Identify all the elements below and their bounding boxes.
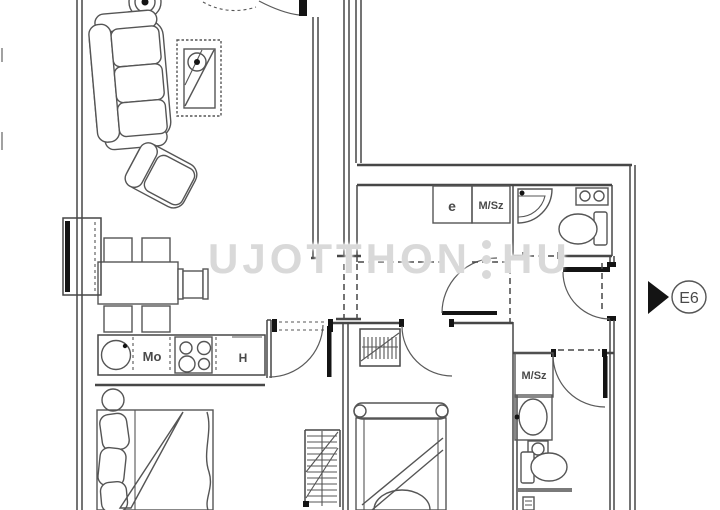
blanket-edge [207,412,211,510]
washer-label: M/Sz [521,370,547,382]
framed-picture [177,40,221,116]
pillows [97,412,130,510]
bathroom-top [442,185,612,315]
toilet-bowl [531,453,567,481]
high-chair [183,271,203,298]
blanket-fold [362,438,443,510]
top-door [203,0,307,16]
entrance-door-leaf [563,267,610,272]
headboard [354,403,448,419]
dining-set [98,238,208,332]
door-leaf [603,356,608,398]
oval-sink [519,399,547,435]
sofa [87,9,173,151]
entrance-area [358,256,616,510]
bedroom2-door-arc [402,326,452,376]
floor-plan: e M/Sz [0,0,720,510]
bathroom-door-arc [442,258,497,313]
wardrobe-hangers-left [303,430,340,507]
sink-tap [520,191,525,196]
living-room [63,0,221,332]
wall-cabinet [576,188,608,205]
sink-tap [515,415,520,420]
bathroom-bottom: M/Sz [513,349,614,510]
bedside-lamp [102,389,124,411]
door-leaf [299,0,307,16]
entrance-arrow-icon [648,281,669,314]
bedroom1 [95,385,265,510]
interior-walls-top [311,0,361,319]
fridge-label: H [239,351,248,365]
dashed-door-arc [203,2,256,11]
chair [104,238,132,264]
chair-armrest [178,269,183,299]
bathroom-door-leaf [442,311,497,315]
door-swing-arc [269,325,323,377]
blanket-fold [120,412,183,508]
kitchen: Mo H [98,335,265,375]
chair [142,306,170,332]
blanket-curve [374,490,430,510]
closet-e-label: e [448,198,456,214]
sink-label: Mo [143,349,162,364]
wardrobe-hangers-top [360,329,400,366]
small-cabinet [523,497,534,510]
bedroom1-door [267,319,333,378]
entrance-code-label: E6 [679,290,699,307]
door-swing-arc [259,1,299,15]
toilet-bowl [559,214,597,244]
hall-bottom-walls [329,319,517,510]
chair-armrest [203,269,208,299]
dining-table [98,262,178,304]
armchair [122,140,201,212]
sink-tap [123,344,127,348]
floor-plan-drawing: e M/Sz [0,0,720,510]
bedroom2 [354,329,448,510]
entrance-marker: E6 [648,281,706,314]
door-leaf [327,326,332,377]
door-swing-arc [553,355,605,407]
chair [142,238,170,264]
closet-msz-label: M/Sz [478,200,504,212]
single-bed [354,403,448,510]
chair [104,306,132,332]
entrance-door-arc [563,272,610,319]
